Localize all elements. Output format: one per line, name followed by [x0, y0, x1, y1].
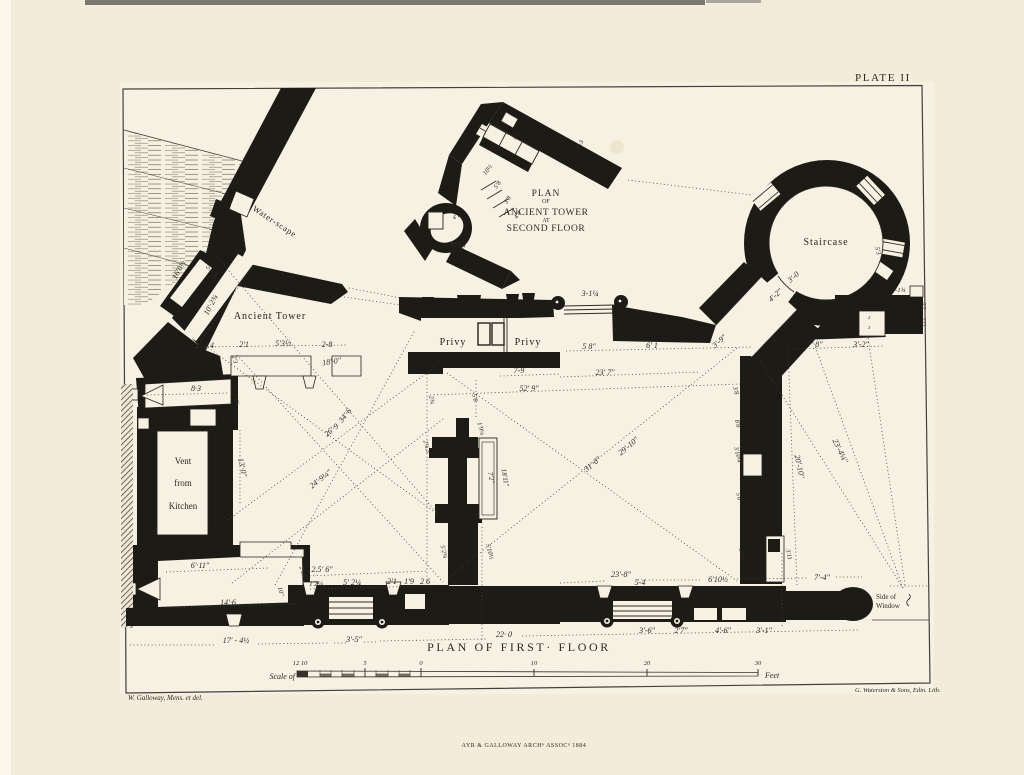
svg-text:30: 30: [754, 660, 762, 667]
svg-text:2-8: 2-8: [322, 340, 333, 349]
svg-text:W. Galloway, Mens. et del.: W. Galloway, Mens. et del.: [128, 694, 203, 702]
svg-text:G. Waterston & Sons, Edin. Lit: G. Waterston & Sons, Edin. Lith.: [855, 687, 941, 694]
svg-text:3 4: 3 4: [203, 341, 214, 350]
svg-text:PLAN OF FIRST· FLOOR: PLAN OF FIRST· FLOOR: [427, 640, 611, 654]
svg-text:4′-6″: 4′-6″: [715, 626, 731, 635]
svg-text:2 6: 2 6: [420, 577, 430, 586]
svg-text:from: from: [174, 478, 192, 488]
svg-text:2′1: 2′1: [239, 340, 249, 349]
svg-text:12 10: 12 10: [293, 660, 308, 667]
svg-text:6′ 1: 6′ 1: [646, 341, 658, 350]
svg-text:3-1¼: 3-1¼: [581, 289, 599, 298]
svg-text:2.5′ 6″: 2.5′ 6″: [311, 565, 333, 574]
svg-text:5′ 2¼: 5′ 2¼: [343, 578, 361, 587]
svg-text:3′-6″: 3′-6″: [638, 626, 655, 635]
svg-text:OF: OF: [542, 199, 550, 205]
svg-text:7-9: 7-9: [514, 366, 525, 375]
svg-text:Privy: Privy: [450, 240, 467, 249]
svg-text:14′·6: 14′·6: [220, 598, 236, 607]
svg-text:17′ - 4½: 17′ - 4½: [223, 636, 249, 645]
svg-text:Feet: Feet: [764, 671, 780, 680]
svg-text:6′10½: 6′10½: [708, 575, 728, 584]
svg-text:5-4: 5-4: [635, 578, 646, 587]
svg-text:5 8″: 5 8″: [582, 342, 596, 351]
svg-text:23′-8″: 23′-8″: [611, 570, 631, 579]
svg-text:6′·11″: 6′·11″: [191, 561, 210, 570]
svg-text:Side of: Side of: [876, 593, 897, 601]
svg-text:52′ 9″: 52′ 9″: [519, 384, 539, 393]
svg-text:Ancient Tower: Ancient Tower: [234, 311, 306, 322]
svg-text:Window: Window: [876, 602, 901, 610]
svg-text:5′2: 5′2: [920, 302, 927, 310]
svg-text:2¾: 2¾: [427, 395, 435, 404]
svg-text:2′-1¾: 2′-1¾: [891, 287, 906, 294]
svg-text:PLAN: PLAN: [532, 189, 561, 199]
svg-text:10: 10: [531, 660, 538, 667]
svg-text:3′-5″: 3′-5″: [345, 635, 362, 644]
svg-text:Kitchen: Kitchen: [169, 501, 198, 511]
svg-text:23′ 7″: 23′ 7″: [595, 368, 615, 377]
svg-text:22· 0: 22· 0: [496, 630, 512, 639]
svg-text:7′ 8″: 7′ 8″: [807, 340, 823, 349]
svg-text:20: 20: [644, 660, 651, 667]
svg-text:PLATE II: PLATE II: [855, 72, 911, 84]
svg-text:1′9: 1′9: [404, 577, 414, 586]
svg-text:Staircase: Staircase: [803, 237, 848, 248]
svg-text:2′11: 2′11: [920, 317, 927, 327]
svg-text:Privy: Privy: [440, 337, 467, 348]
svg-text:8·3: 8·3: [191, 384, 201, 393]
svg-text:7′-4″: 7′-4″: [814, 573, 830, 582]
svg-text:2′7″: 2′7″: [674, 626, 688, 635]
svg-text:Vent: Vent: [175, 456, 192, 466]
svg-text:3′-1″: 3′-1″: [755, 626, 772, 635]
svg-text:5′3½: 5′3½: [275, 339, 291, 348]
svg-text:1′2¼: 1′2¼: [309, 580, 324, 588]
svg-text:Scale of: Scale of: [269, 672, 296, 681]
svg-text:3′-2″: 3′-2″: [852, 340, 869, 349]
svg-text:Privy: Privy: [515, 337, 542, 348]
svg-text:2′1: 2′1: [387, 577, 397, 586]
svg-text:SECOND FLOOR: SECOND FLOOR: [507, 224, 586, 234]
svg-text:AYR & GALLOWAY ARCHⁿ ASSOCⁿ 18: AYR & GALLOWAY ARCHⁿ ASSOCⁿ 1884: [462, 743, 587, 749]
